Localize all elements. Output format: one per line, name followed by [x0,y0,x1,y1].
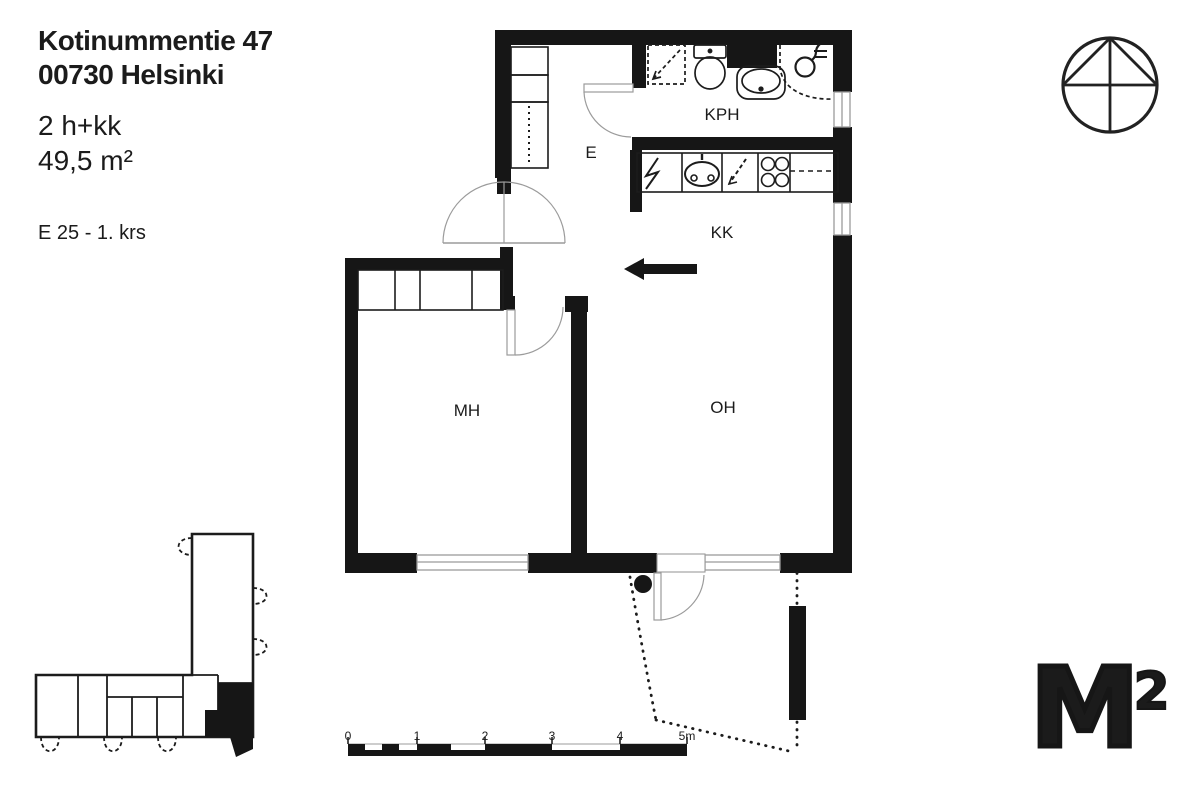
wall-bath-floor [632,137,852,150]
scale-label-4: 4 [617,729,624,743]
scale-label-1: 1 [414,729,421,743]
patio-door-arc [661,575,704,620]
walls [345,30,852,573]
address-line-2: 00730 Helsinki [38,58,273,92]
site-plan [20,520,300,780]
wall-bedroom-west [345,258,358,573]
patio-door-opening [657,554,705,572]
washer-reservation-icon [648,45,685,84]
m2-logo-letter: M [1030,660,1135,757]
wall-right-3 [833,235,852,573]
wall-bedroom-north [345,258,503,270]
apartment-area: 49,5 m² [38,143,273,178]
scale-label-0: 0 [345,729,352,743]
wall-entry-kitchen [630,150,642,212]
sink-icon [737,66,785,99]
wall-entry-bath [632,30,646,88]
address-line-1: Kotinummentie 47 [38,24,273,58]
m2-logo: M 2 [1030,660,1170,757]
room-label-kitchenette: KK [711,223,734,242]
floorplan-drawing: E KPH KK MH OH 0 1 2 3 4 [340,20,860,765]
m2-logo-superscript: 2 [1133,666,1169,718]
dishwasher-reservation-icon [729,159,746,184]
bathroom-door-leaf [584,84,633,92]
bedroom-wardrobes [358,270,503,310]
front-door [443,182,565,243]
highlighted-unit-balcony [230,737,253,757]
wall-bottom-3 [780,553,852,573]
compass-icon [1052,26,1168,142]
wall-top [495,30,852,45]
toilet-icon [694,45,726,89]
room-label-bathroom: KPH [705,105,740,124]
stove-icon [762,158,789,187]
scale-label-5: 5m [679,729,696,743]
wall-right-1 [833,30,852,92]
listing-info: Kotinummentie 47 00730 Helsinki 2 h+kk 4… [38,24,273,245]
fridge-icon [646,158,658,189]
patio-drain-dot [634,575,652,593]
patio-screen [789,606,806,720]
bedroom-door-leaf [507,310,515,355]
entrance-arrow-icon [624,258,697,280]
bedroom-door-arc [515,307,563,355]
bathroom-door-arc [584,92,631,137]
room-label-bedroom: MH [454,401,480,420]
scale-label-2: 2 [482,729,489,743]
room-label-entry: E [585,143,596,162]
scale-label-3: 3 [549,729,556,743]
wall-bottom-2 [528,553,657,573]
shower-icon [780,44,833,99]
apartment-type: 2 h+kk [38,108,273,143]
wall-partition [571,302,587,553]
entry-closet [511,47,548,168]
wall-bedroom-door-left [503,296,515,310]
unit-floor-info: E 25 - 1. krs [38,222,273,245]
scale-bar: 0 1 2 3 4 5m [345,729,696,756]
bathroom-duct [727,45,777,68]
scale-labels: 0 1 2 3 4 5m [345,729,696,743]
patio-door-leaf [654,573,661,620]
wall-entry-west [495,30,511,178]
room-label-living-room: OH [710,398,736,417]
kitchen-fixtures [637,153,838,192]
kitchen-sink-icon [685,154,719,186]
